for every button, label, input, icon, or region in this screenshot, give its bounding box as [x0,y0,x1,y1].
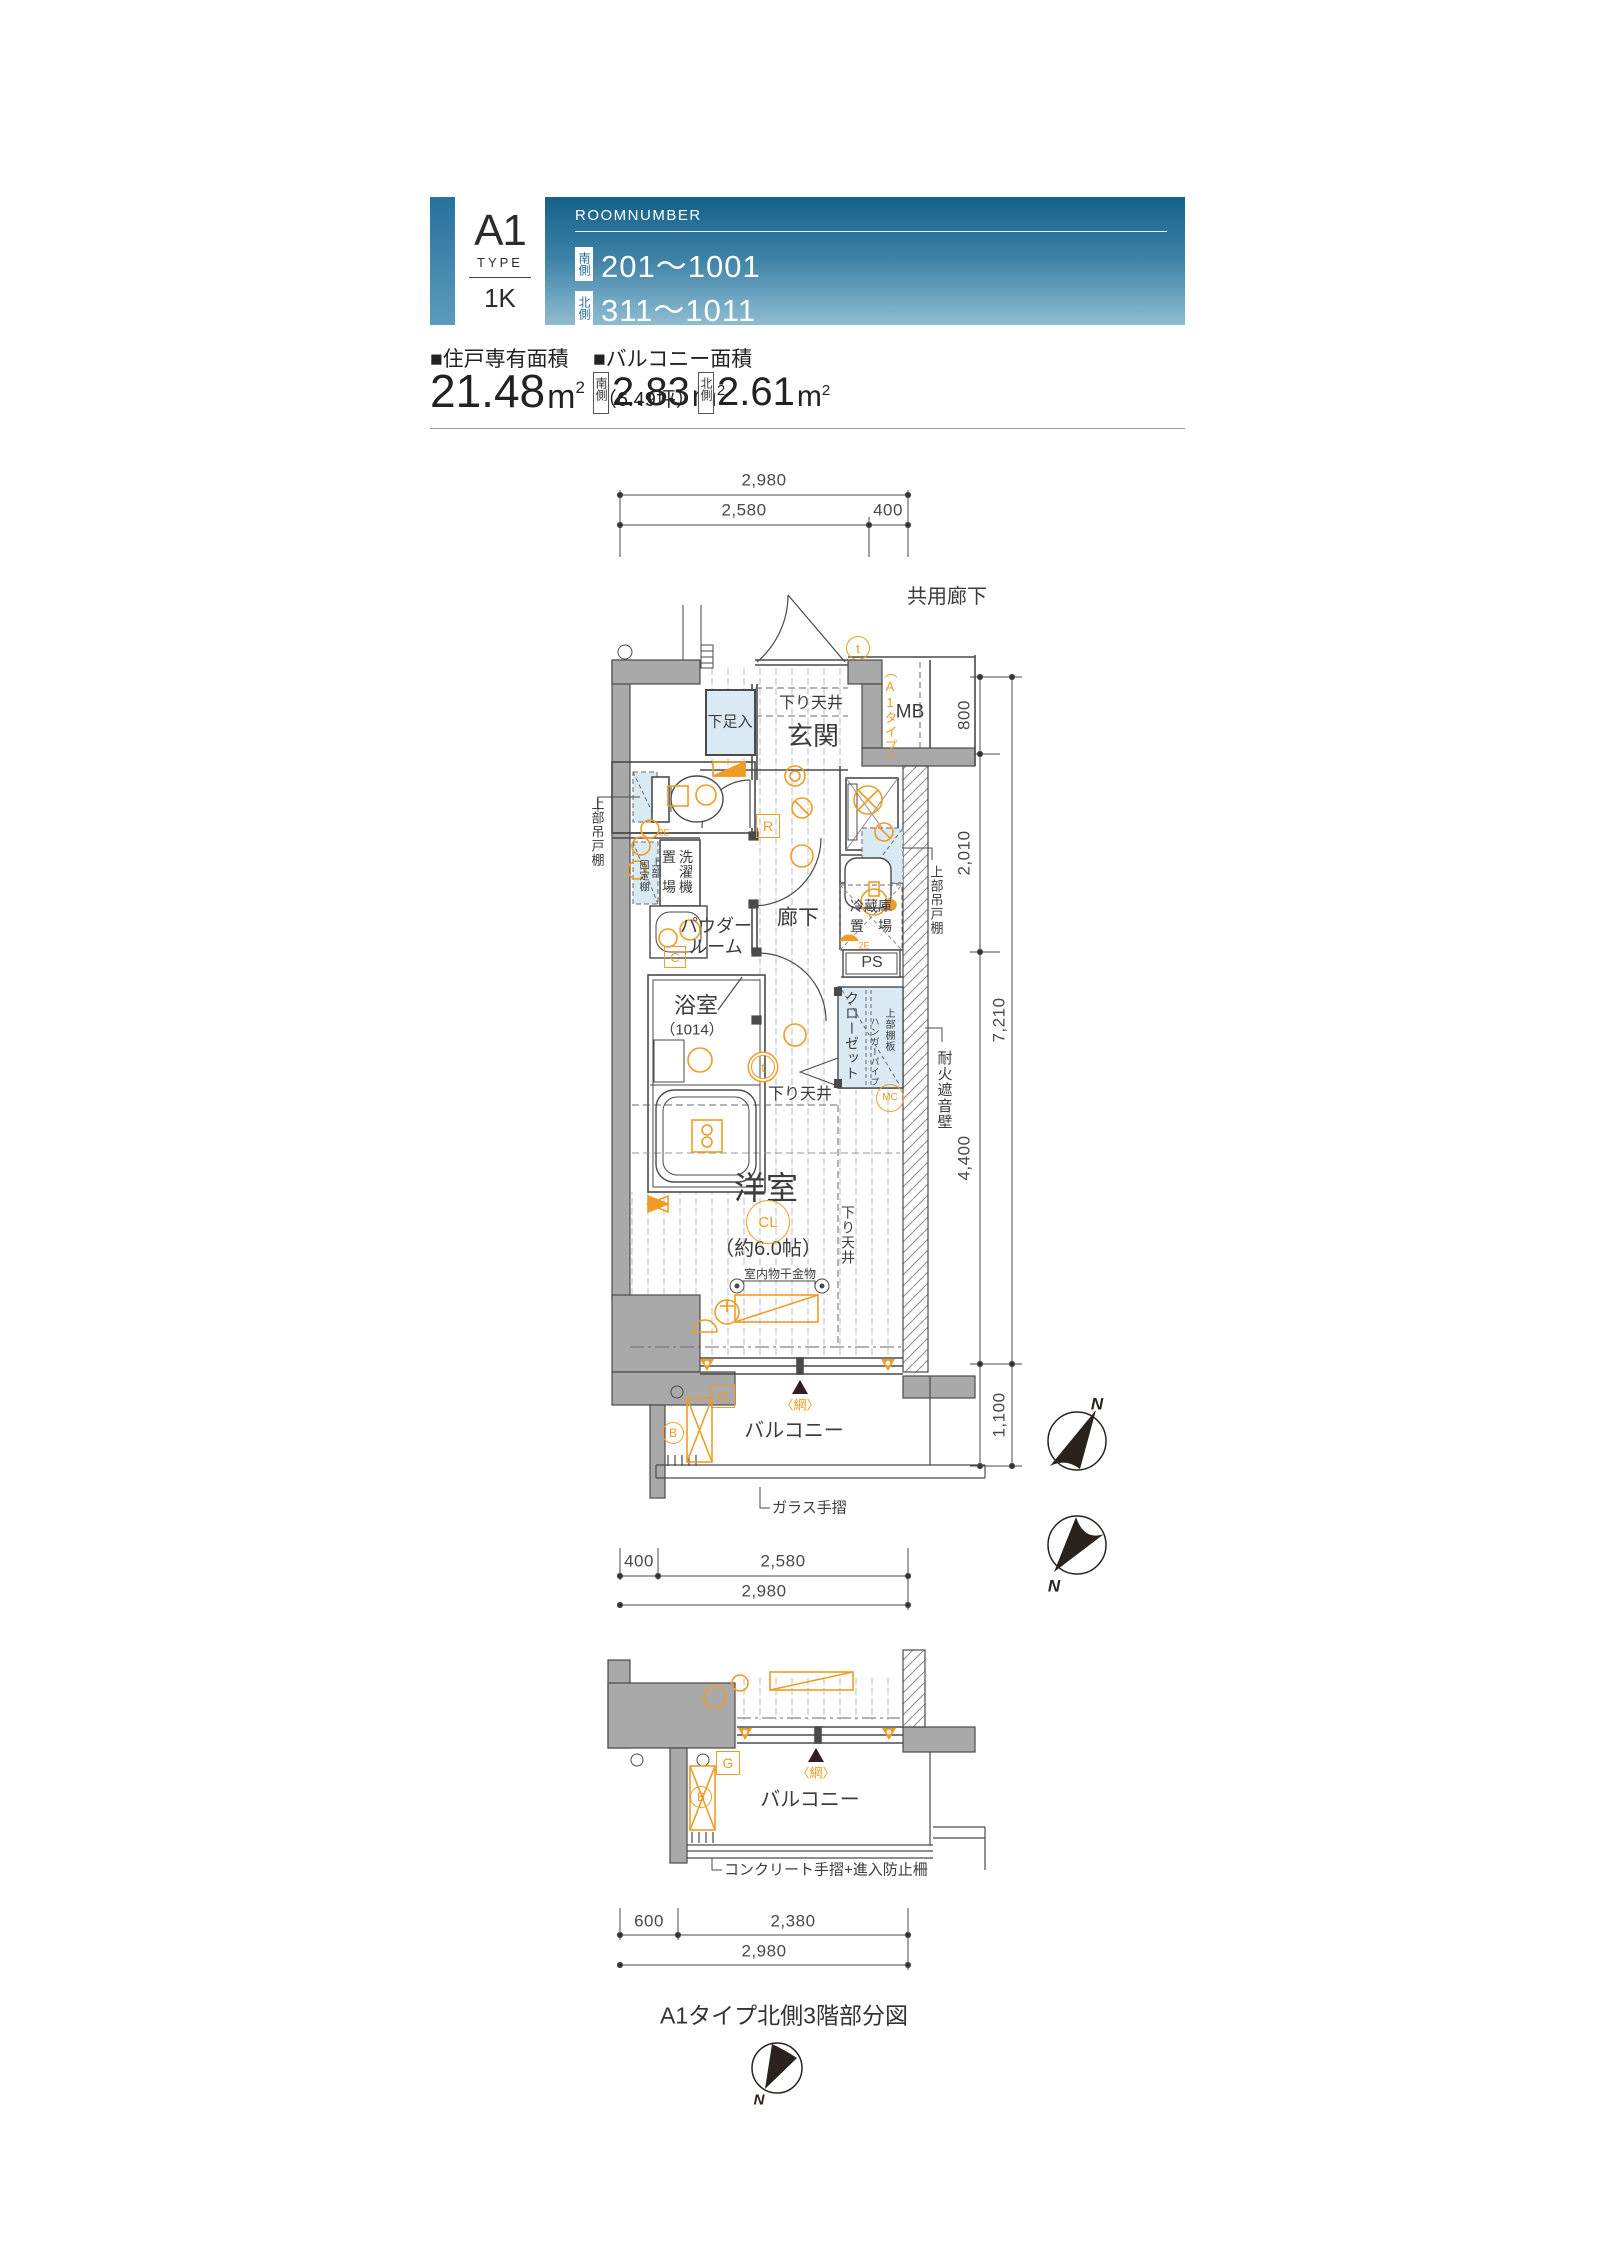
dim-bottom-total: 2,980 [741,1583,786,1600]
net-label-main: 〈網〉 [780,1399,819,1412]
unit-area-unit: m [547,380,575,414]
ps-label: PS [861,955,882,971]
floorplan-page: A1 TYPE 1K ROOMNUMBER 南側 201〜1001 北側 311… [0,0,1600,2264]
corridor-label: 廊下 [777,908,819,929]
mark-2e-fridge: 2E [858,942,869,951]
common-corridor-label: 共用廊下 [907,587,987,607]
plan-type: 1K [484,283,516,314]
roomnumber-panel: ROOMNUMBER 南側 201〜1001 北側 311〜1011 [545,197,1185,325]
header-accent-strip [430,197,455,325]
mark-mc-closet: MC [876,1084,904,1112]
roomnumber-label: ROOMNUMBER [575,207,702,224]
dim-partial-600: 600 [634,1913,664,1930]
balcony-south-number: 2.83 [612,372,690,412]
dim-partial-2980: 2,980 [741,1943,786,1960]
mark-r-corridor: R [756,814,780,838]
upper-cabinet-left-label: 上部吊戸棚 [591,797,604,867]
powder-room-line1: パウダー [680,917,752,935]
shelf-board-label: 上部棚板 [883,1008,893,1052]
bath-label: 浴室 [674,995,718,1017]
dim-right-800: 800 [956,700,973,730]
dim-top-sub: 400 [873,502,903,519]
balcony-north-number: 2.61 [717,372,795,412]
concrete-rail-label: コンクリート手摺+進入防止柵 [724,1863,928,1878]
mark-g-balcony: G [711,1384,735,1408]
fire-wall-label: 耐火遮音壁 [937,1050,952,1130]
south-badge: 南側 [575,247,593,281]
type-box: A1 TYPE 1K [455,197,545,325]
powder-room-line2: ルーム [689,938,742,956]
dim-right-total: 7,210 [991,997,1008,1042]
upper-shelf-note: 上部 [649,857,659,879]
type-label: TYPE [477,255,523,270]
balcony-south-badge: 南側 [593,372,609,414]
laundry-bar-label: 室内物干金物 [742,1268,818,1280]
dropped-ceiling-right: 下り天井 [841,1205,855,1265]
bath-size-label: （1014） [660,1023,723,1038]
dropped-ceiling-entrance: 下り天井 [779,696,843,712]
balcony-north-unit: m [797,382,822,412]
a1-type-tag: （A1タイプ） [884,665,897,767]
glass-rail-label: ガラス手摺 [772,1501,847,1516]
dim-bottom-main: 2,580 [760,1553,805,1570]
unit-area-number: 21.48 [430,368,545,414]
roomnumber-rule [575,231,1167,232]
north-label-2: N [1048,1578,1060,1595]
partial-plan-title: A1タイプ北側3階部分図 [660,2005,908,2028]
balcony-area-label: ■バルコニー面積 [593,343,752,373]
mark-cl-westroom: CL [746,1200,790,1244]
fixed-shelf-label: 固定棚 [637,860,647,893]
balcony-label-main: バルコニー [744,1421,844,1441]
fridge-label-line1: 冷蔵庫 [850,899,892,913]
north-badge: 北側 [575,291,593,325]
roomnumber-row-north: 北側 311〜1011 [575,285,756,330]
dim-top-main: 2,580 [721,502,766,519]
mb-label: MB [896,703,925,722]
dropped-ceiling-mid: 下り天井 [768,1087,832,1103]
fridge-label-line2: 置 場 [850,919,892,933]
hanger-pipe-label: ハンガーパイプ [870,1017,879,1087]
mark-b-balcony-partial: B [690,1786,712,1808]
type-divider [469,277,531,278]
washer-label-col2: 置 場 [662,850,676,895]
mark-2e-toilet: 2E [658,829,669,838]
net-label-partial: 〈網〉 [796,1767,835,1780]
unit-area-sup: 2 [575,379,584,396]
dim-right-1100: 1,100 [991,1392,1008,1437]
floor-plan-drawing [540,450,1160,2150]
mark-g-balcony-partial: G [716,1751,740,1775]
south-room-numbers: 201〜1001 [601,241,761,286]
balcony-north-sup: 2 [822,383,830,398]
mark-c-powder: C [664,946,686,968]
north-label-3: N [754,2093,765,2108]
entrance-label: 玄関 [787,723,839,749]
mark-b-balcony: B [662,1422,684,1444]
mark-t-corridor: t [751,1055,775,1079]
washer-label-col1: 洗濯機 [679,850,693,895]
north-label-1: N [1091,1396,1103,1413]
dim-top-total: 2,980 [741,472,786,489]
balcony-north-value: 2.61m2 [717,372,830,412]
shoe-cabinet-label: 下足入 [707,715,752,730]
upper-cabinet-right-label: 上部吊戸棚 [930,865,943,935]
dim-right-2010: 2,010 [956,830,973,875]
closet-label: クローゼット [845,991,859,1081]
fire-wall-hatch [903,766,928,1727]
dim-bottom-sub: 400 [624,1553,654,1570]
dim-right-4400: 4,400 [956,1135,973,1180]
mark-t-entrance: t [846,636,870,660]
dim-partial-2380: 2,380 [770,1913,815,1930]
plan-header: A1 TYPE 1K ROOMNUMBER 南側 201〜1001 北側 311… [430,197,1185,325]
balcony-north-badge: 北側 [698,372,714,414]
north-room-numbers: 311〜1011 [601,285,756,330]
type-code: A1 [474,209,526,253]
section-divider [430,428,1185,429]
balcony-label-partial: バルコニー [760,1790,860,1810]
roomnumber-row-south: 南側 201〜1001 [575,241,761,286]
